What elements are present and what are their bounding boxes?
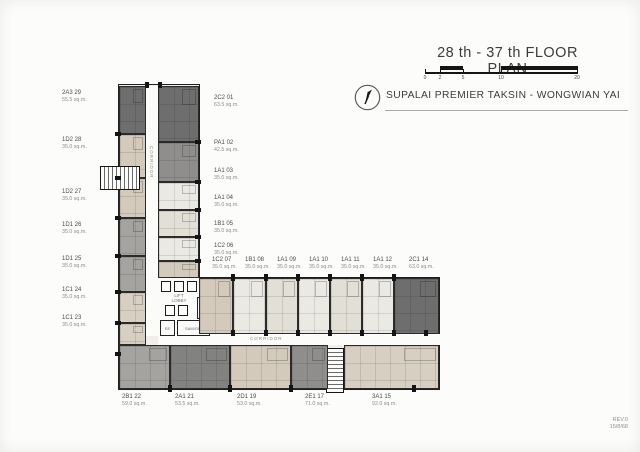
- corridor-label: CORRIDOR: [250, 336, 283, 341]
- unit-label: 2E1 1771.0 sq.m.: [305, 394, 355, 408]
- unit-1A1-11: [330, 278, 362, 334]
- wall-stub: [328, 330, 332, 336]
- wall-stub: [424, 330, 428, 336]
- corridor-label: CORRIDOR: [149, 146, 154, 179]
- unit-1B1-05: [158, 237, 199, 261]
- unit-label: 1D1 2535.0 sq.m.: [62, 256, 112, 270]
- unit-label: 1C1 2335.0 sq.m.: [62, 315, 112, 329]
- floor-plan-page: 28 th - 37 th FLOOR PLAN 0 2 5 10 20 SUP…: [0, 0, 640, 452]
- wall-stub: [392, 274, 396, 281]
- unit-2A3-29: [119, 86, 146, 134]
- wall-stub: [115, 290, 121, 294]
- unit-1A1-10: [298, 278, 330, 334]
- unit-1A1-09: [266, 278, 298, 334]
- unit-label: 1C1 2435.0 sq.m.: [62, 287, 112, 301]
- unit-1A1-12: [362, 278, 394, 334]
- lift-shaft: [187, 281, 197, 292]
- unit-1C1-23: [119, 323, 146, 345]
- unit-1A1-04: [158, 210, 199, 237]
- unit-label: 1A1 0335.0 sq.m.: [214, 168, 264, 182]
- wall-stub: [115, 176, 121, 180]
- unit-label: 2A1 2153.5 sq.m.: [175, 394, 225, 408]
- unit-label: PA1 0242.5 sq.m.: [214, 140, 264, 154]
- unit-2C2-01: [158, 86, 199, 142]
- wall-stub: [296, 330, 300, 336]
- wall-stub: [328, 274, 332, 281]
- wall-stub: [115, 132, 121, 136]
- wall-stub: [145, 82, 149, 88]
- wall-stub: [115, 352, 121, 356]
- unit-label: 1D1 2635.0 sq.m.: [62, 222, 112, 236]
- unit-label: 2C2 0163.5 sq.m.: [214, 95, 264, 109]
- unit-1C2-06: [158, 261, 199, 278]
- unit-2A1-21: [170, 345, 230, 389]
- wall-stub: [158, 82, 162, 88]
- unit-1A1-03: [158, 182, 199, 210]
- unit-2B1-22: [119, 345, 170, 389]
- wall-stub: [195, 180, 201, 184]
- unit-1B1-08: [233, 278, 266, 334]
- wall-stub: [168, 385, 172, 392]
- wall-stub: [392, 330, 396, 336]
- revision-number: REV.0: [540, 417, 628, 424]
- wall-stub: [264, 330, 268, 336]
- wall-stub: [231, 330, 235, 336]
- wall-stub: [296, 274, 300, 281]
- wall-stub: [195, 235, 201, 239]
- unit-label: 2C1 1463.0 sq.m.: [409, 257, 459, 271]
- unit-label: 1B1 0535.0 sq.m.: [214, 221, 264, 235]
- wall-stub: [195, 259, 201, 263]
- wall-stub: [228, 385, 232, 392]
- unit-label: 2D1 1953.0 sq.m.: [237, 394, 287, 408]
- unit-label: 1C2 0635.0 sq.m.: [214, 243, 264, 257]
- ee-room: EE: [160, 320, 175, 336]
- corridor-vertical: CORRIDOR: [146, 86, 158, 336]
- fire-stair-south: [326, 348, 344, 393]
- wall-stub: [115, 216, 121, 220]
- lift-shaft: [161, 281, 171, 292]
- unit-3A1-15: [344, 345, 439, 389]
- wall-stub: [195, 140, 201, 144]
- unit-label: 3A1 1592.0 sq.m.: [372, 394, 422, 408]
- lift-shaft: [178, 305, 188, 316]
- floor-plan-drawing: CORRIDOR CORRIDOR LIFT LOBBY FIREMAN LIF…: [0, 0, 640, 452]
- unit-1D1-25: [119, 256, 146, 292]
- wall-stub: [115, 321, 121, 325]
- wall-stub: [360, 330, 364, 336]
- unit-1C1-24: [119, 292, 146, 323]
- unit-label: 1D2 2735.0 sq.m.: [62, 189, 112, 203]
- revision-block: REV.0 15/8/68: [540, 417, 628, 431]
- wall-stub: [264, 274, 268, 281]
- lift-shaft: [165, 305, 175, 316]
- unit-2E1-17: [291, 345, 328, 389]
- wall-stub: [412, 385, 416, 392]
- unit-PA1-02: [158, 142, 199, 182]
- unit-1D1-26: [119, 218, 146, 256]
- lift-shaft: [174, 281, 184, 292]
- wall-stub: [195, 208, 201, 212]
- unit-label: 1A1 0435.0 sq.m.: [214, 195, 264, 209]
- wall-stub: [360, 274, 364, 281]
- revision-date: 15/8/68: [540, 424, 628, 431]
- wall-stub: [231, 274, 235, 281]
- unit-1C2-07: [199, 278, 233, 334]
- unit-label: 1D2 2835.0 sq.m.: [62, 137, 112, 151]
- unit-label: 2B1 2259.0 sq.m.: [122, 394, 172, 408]
- wall-stub: [289, 385, 293, 392]
- unit-2C1-14: [394, 278, 439, 334]
- unit-label: 2A3 2955.5 sq.m.: [62, 90, 112, 104]
- wall-stub: [115, 254, 121, 258]
- lift-lobby-label: LIFT LOBBY: [168, 293, 190, 303]
- unit-2D1-19: [230, 345, 291, 389]
